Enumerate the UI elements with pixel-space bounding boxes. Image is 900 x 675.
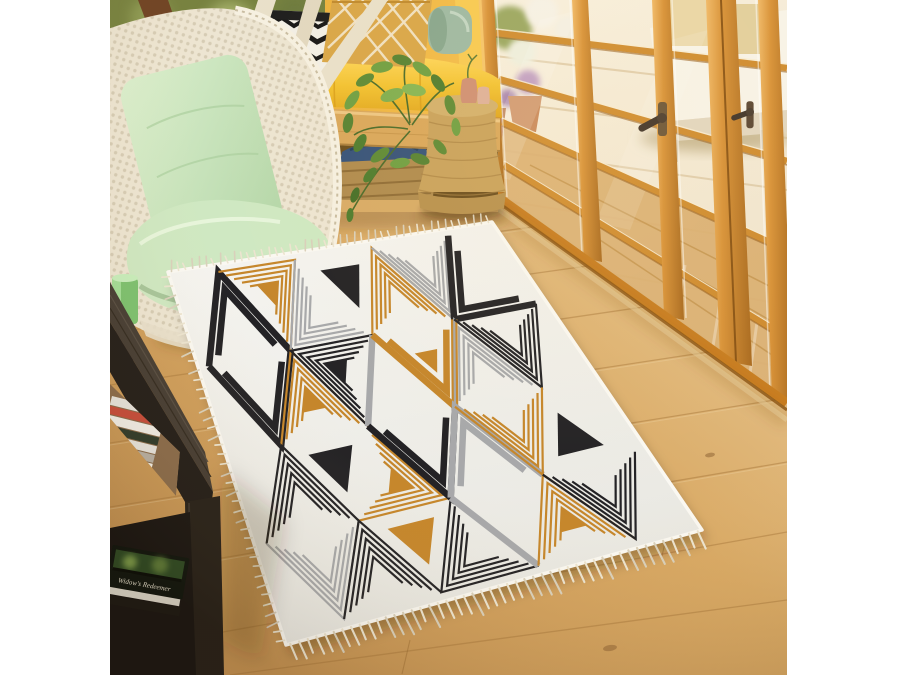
photo-vignette — [110, 0, 787, 675]
product-photo-canvas: Widow's Redeemer — [0, 0, 900, 675]
room-photo: Widow's Redeemer — [110, 0, 787, 675]
room-scene: Widow's Redeemer — [110, 0, 787, 675]
